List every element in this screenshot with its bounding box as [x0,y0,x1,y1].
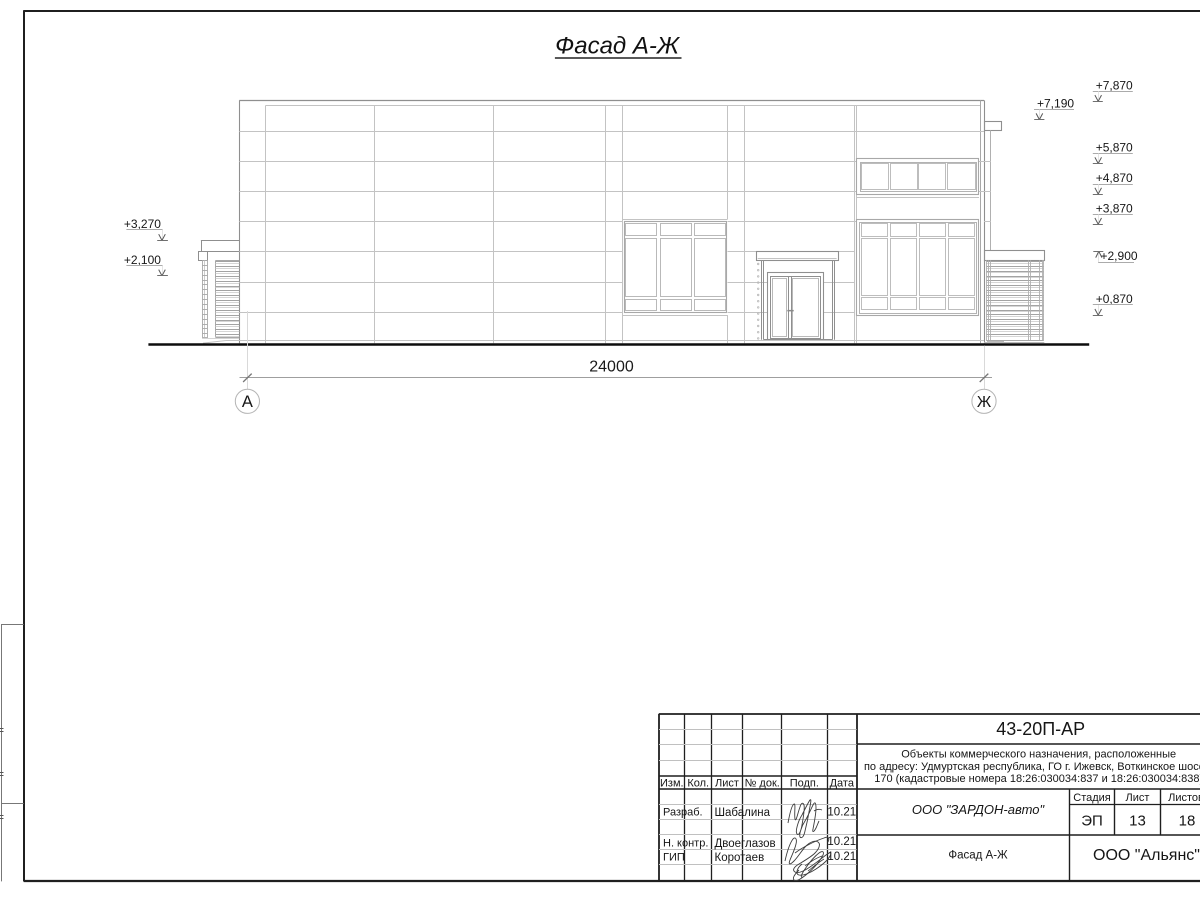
svg-text:Двоеглазов: Двоеглазов [715,838,776,850]
svg-text:+5,870: +5,870 [1096,141,1133,155]
svg-text:170 (кадастровые номера 18:26:: 170 (кадастровые номера 18:26:030034:837… [874,773,1200,785]
svg-text:Разраб.: Разраб. [663,806,703,818]
svg-text:13: 13 [1129,813,1146,830]
svg-text:по адресу: Удмуртская республи: по адресу: Удмуртская республика, ГО г. … [864,761,1200,773]
svg-text:+3,270: +3,270 [124,217,161,231]
svg-text:ЭП: ЭП [1081,813,1103,830]
svg-text:Изм.: Изм. [660,778,684,790]
svg-text:Кол.: Кол. [687,778,709,790]
svg-text:Подп.: Подп. [790,778,819,790]
svg-text:+7,870: +7,870 [1096,78,1133,92]
svg-text:Шабалина: Шабалина [715,807,771,819]
svg-text:+2,900: +2,900 [1101,249,1138,263]
svg-text:+2,100: +2,100 [124,253,161,267]
svg-text:Листов: Листов [1168,792,1200,804]
svg-text:+4,870: +4,870 [1096,171,1133,185]
svg-text:10.21: 10.21 [827,836,856,848]
svg-text:Коротаев: Коротаев [715,852,765,864]
svg-text:ООО "ЗАРДОН-авто": ООО "ЗАРДОН-авто" [912,802,1046,817]
svg-text:Объекты коммерческого назначен: Объекты коммерческого назначения, распол… [901,748,1176,760]
svg-text:Дата: Дата [830,777,855,789]
svg-text:Лист: Лист [715,778,739,790]
svg-text:43-20П-АР: 43-20П-АР [996,719,1085,739]
svg-text:Н. контр.: Н. контр. [663,837,708,849]
svg-text:№ док.: № док. [745,778,780,790]
svg-text:10.21: 10.21 [827,806,856,818]
svg-text:10.21: 10.21 [827,851,856,863]
svg-text:Фасад А-Ж: Фасад А-Ж [948,850,1008,862]
svg-text:Фасад А-Ж: Фасад А-Ж [555,33,681,60]
svg-text:Стадия: Стадия [1073,792,1111,804]
svg-text:А: А [242,393,253,411]
svg-text:+3,870: +3,870 [1096,201,1133,215]
svg-text:18: 18 [1179,813,1196,830]
svg-text:Лист: Лист [1126,792,1150,804]
svg-text:ООО "Альянс": ООО "Альянс" [1093,847,1200,864]
svg-text:24000: 24000 [589,358,634,375]
svg-text:ГИП: ГИП [663,852,685,864]
svg-text:Ж: Ж [977,394,992,411]
svg-text:+7,190: +7,190 [1037,97,1074,111]
